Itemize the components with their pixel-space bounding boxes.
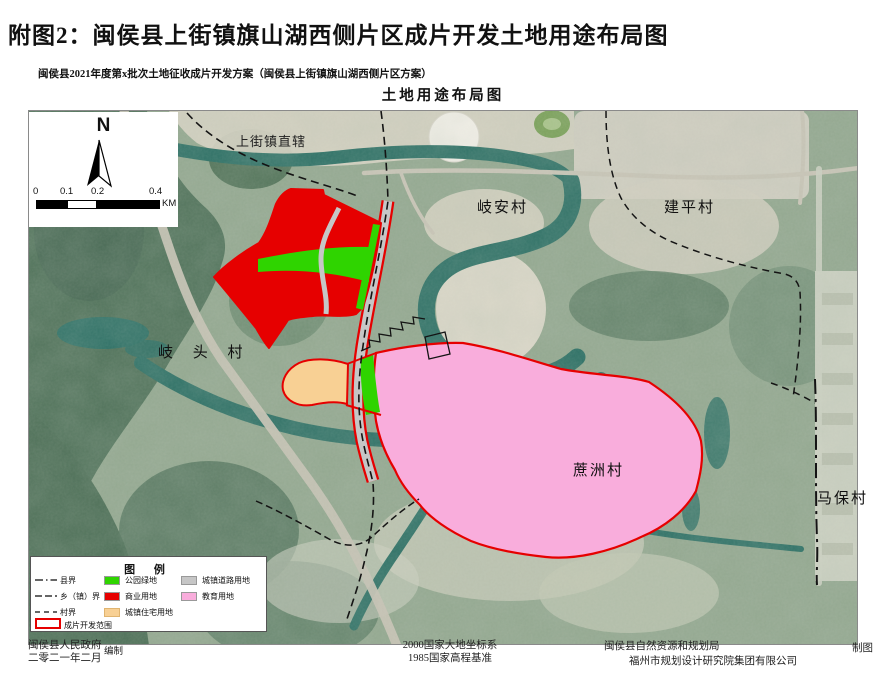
development-area-sample [35, 618, 61, 629]
compiler-role: 编制 [104, 646, 123, 659]
scale-tick: 0.4 [149, 186, 162, 197]
datum-line2: 1985国家高程基准 [375, 653, 525, 666]
north-label: N [29, 115, 178, 137]
education-swatch [181, 592, 197, 601]
scale-tick: 0.2 [91, 186, 104, 197]
scale-bar [36, 200, 160, 209]
scale-tick: 0 [33, 186, 38, 197]
park-green-swatch [104, 576, 120, 585]
village-boundary-sample [35, 610, 57, 614]
mapping-role: 制图 [852, 643, 873, 656]
land-use-map-sheet: 附图2：闽侯县上街镇旗山湖西侧片区成片开发土地用途布局图 闽侯县2021年度第x… [0, 0, 882, 677]
town-boundary-sample [35, 594, 57, 598]
legend-road-label: 城镇道路用地 [202, 575, 250, 586]
legend-education-label: 教育用地 [202, 591, 234, 602]
document-title: 附图2：闽侯县上街镇旗山湖西侧片区成片开发土地用途布局图 [8, 16, 669, 50]
mapping-org1: 闽侯县自然资源和规划局 [604, 641, 720, 654]
label-shangjie-area: 上街镇直辖 [236, 131, 306, 150]
datum-block: 2000国家大地坐标系 1985国家高程基准 [375, 640, 525, 665]
commercial-swatch [104, 592, 120, 601]
county-boundary-sample [35, 578, 57, 582]
legend: 图 例 县界 乡（镇）界 村界 成片开发范围 公园绿地 商业用地 城镇住宅用地 … [30, 556, 267, 632]
legend-park-label: 公园绿地 [125, 575, 157, 586]
scale-unit: KM [162, 198, 176, 209]
label-qitou-village: 岐 头 村 [158, 341, 251, 362]
plan-subtitle: 闽侯县2021年度第x批次土地征收成片开发方案（闽侯县上街镇旗山湖西侧片区方案） [38, 66, 432, 81]
legend-village-label: 村界 [60, 607, 76, 618]
legend-county-label: 县界 [60, 575, 76, 586]
mapping-org2: 福州市规划设计研究院集团有限公司 [578, 656, 848, 669]
legend-town-label: 乡（镇）界 [60, 591, 100, 602]
residential-zone [283, 359, 348, 405]
compass-scale-inset: N 0 0.1 0.2 0.4 KM [29, 112, 178, 227]
compiler-block: 闽侯县人民政府 二零二一年二月 [28, 640, 102, 665]
label-mabao-village: 马保村 [817, 487, 868, 508]
label-qian-village: 岐安村 [477, 196, 528, 217]
legend-development-label: 成片开发范围 [64, 620, 112, 631]
scale-tick-labels: 0 0.1 0.2 0.4 [29, 186, 178, 198]
compiler-org: 闽侯县人民政府 [28, 640, 102, 653]
road-swatch [181, 576, 197, 585]
legend-commercial-label: 商业用地 [125, 591, 157, 602]
label-jianping-village: 建平村 [664, 196, 715, 217]
north-arrow-icon [77, 138, 121, 188]
legend-residential-label: 城镇住宅用地 [125, 607, 173, 618]
residential-swatch [104, 608, 120, 617]
datum-line1: 2000国家大地坐标系 [375, 640, 525, 653]
compiler-date: 二零二一年二月 [28, 653, 102, 666]
map-inner-title: 土地用途布局图 [28, 84, 858, 105]
scale-tick: 0.1 [60, 186, 73, 197]
label-zhezhou-village: 蔗洲村 [573, 459, 624, 480]
